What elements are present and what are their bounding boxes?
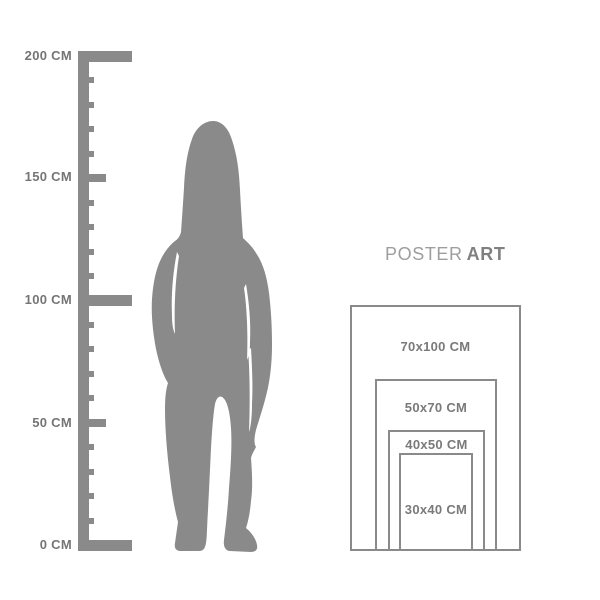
poster-size-label: 30x40 CM [401,502,471,518]
poster-size-label: 40x50 CM [390,437,483,453]
page-title: POSTERART [385,244,505,265]
poster-rect-30x40: 30x40 CM [399,453,473,551]
poster-size-label: 70x100 CM [352,339,519,355]
poster-size-chart: 200 CM 150 CM 100 CM 50 CM 0 CM POSTERAR… [0,0,600,600]
title-word-regular: POSTER [385,244,463,264]
poster-size-label: 50x70 CM [377,400,495,416]
title-word-bold: ART [467,244,506,264]
silhouette-body [152,121,272,552]
